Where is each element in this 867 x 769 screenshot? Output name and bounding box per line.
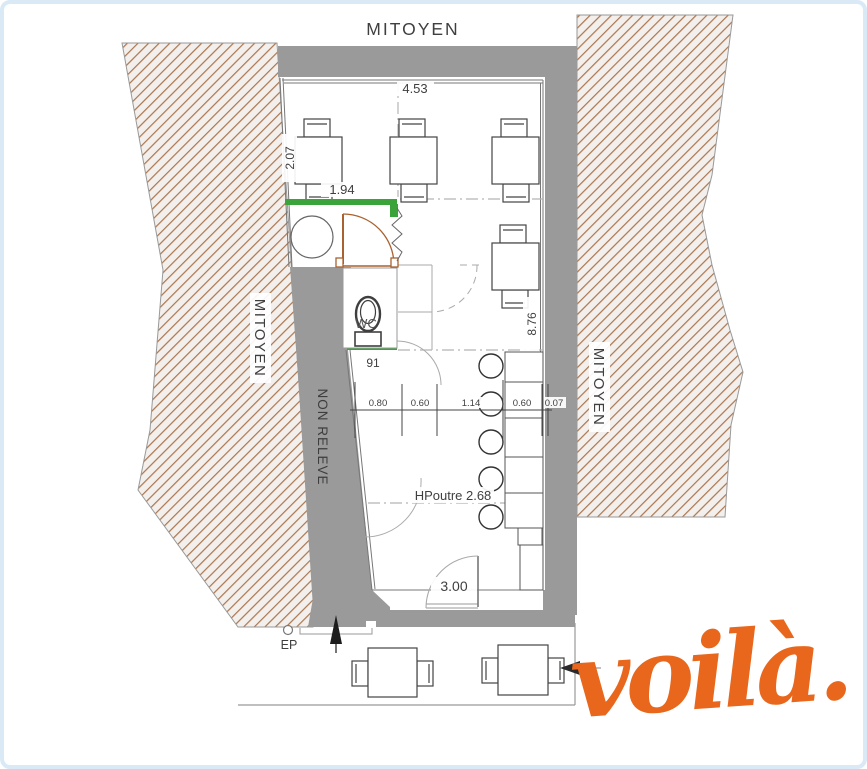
entry-direction-arrow-icon	[560, 661, 601, 675]
floor-plan-page: MITOYEN MITOYEN MITOYEN NON RELEVE 4.53 …	[0, 0, 867, 769]
terrace-tables	[352, 645, 564, 697]
ep-label: EP	[281, 638, 298, 652]
dim-right-span: 8.76	[525, 312, 539, 336]
ep-drain	[284, 626, 293, 635]
mitoyen-top-label: MITOYEN	[366, 19, 459, 39]
wc-label: WC	[355, 316, 377, 331]
dim-chain-4: 0.07	[545, 398, 564, 409]
dim-top-span: 4.53	[402, 81, 427, 96]
dim-left-top: 2.07	[283, 146, 297, 170]
left-parcel-hatch	[122, 43, 313, 627]
hpoutre-label: HPoutre 2.68	[415, 488, 492, 503]
round-table	[291, 216, 333, 258]
mitoyen-right-label: MITOYEN	[590, 348, 607, 427]
floor-plan-svg: MITOYEN MITOYEN MITOYEN NON RELEVE 4.53 …	[4, 4, 863, 765]
dim-chain-0: 0.80	[369, 398, 388, 409]
dim-chain-2: 1.14	[462, 398, 481, 409]
right-parcel-hatch	[577, 15, 743, 517]
dim-wc-width: 91	[366, 356, 380, 370]
non-releve-label: NON RELEVE	[315, 388, 330, 485]
mitoyen-left-label: MITOYEN	[251, 299, 268, 378]
wc-door	[336, 214, 398, 267]
bar-counter	[505, 352, 543, 590]
wc-room	[343, 268, 397, 348]
dim-chain-1: 0.60	[411, 398, 430, 409]
dim-chain-3: 0.60	[513, 398, 532, 409]
dim-green-wall: 1.94	[329, 182, 354, 197]
dim-entrance: 3.00	[440, 578, 467, 594]
